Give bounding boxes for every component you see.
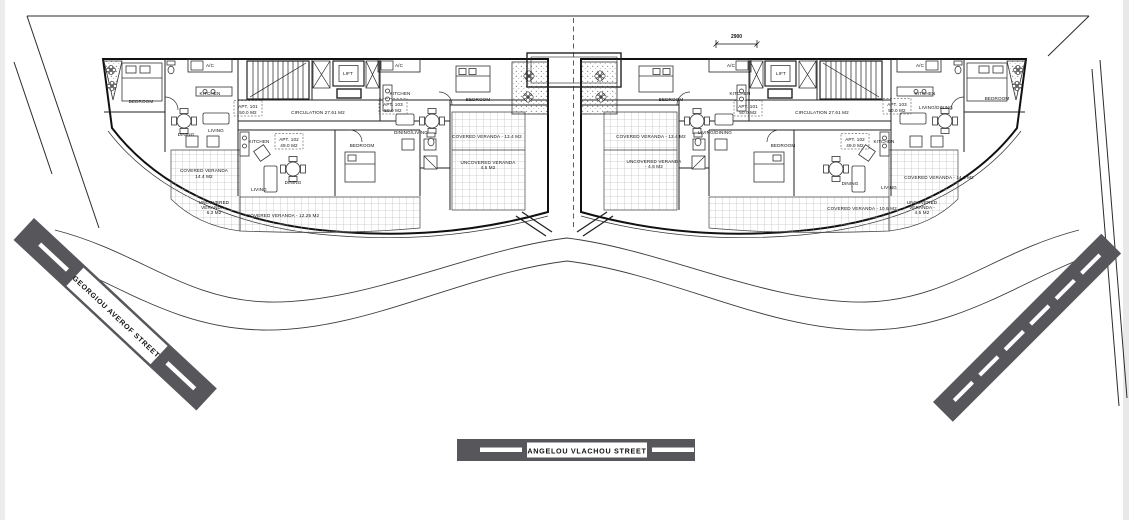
room-label: A/C [395, 63, 404, 68]
street-left: GEORGIOU AVEROF STREET [14, 218, 217, 410]
room-label: LIVING [208, 128, 224, 133]
room-label: KITCHEN [199, 91, 220, 96]
site-plan-canvas: 2900 BEDROOM A/C KITCHEN DINING LIVING A… [0, 0, 1129, 520]
dimension-label: 2900 [731, 34, 742, 40]
apartment-label: APT. 101 [738, 104, 758, 109]
apartment-label: APT. 102 [845, 137, 865, 142]
left-building-wing [103, 59, 552, 238]
room-label: A/C [206, 63, 215, 68]
apartment-area-label: 50.0 M2 [739, 110, 757, 115]
apartment-area-label: 49.0 M2 [280, 143, 298, 148]
lift-label: LIFT [343, 71, 353, 76]
veranda-area-label: - 4.6 M2 [645, 164, 663, 169]
apartment-label: APT. 101 [238, 104, 258, 109]
veranda-label: COVERED VERANDA - 10.6 M2 [827, 206, 897, 211]
dimension-annotation: 2900 [714, 34, 760, 48]
veranda-label: COVERED VERANDA - 13.4 M2 [452, 134, 522, 139]
lane-dash [480, 448, 522, 453]
room-label: KITCHEN [729, 91, 750, 96]
room-label: DINING [178, 132, 195, 137]
apartment-area-label: 50.0 M2 [888, 108, 906, 113]
lane-dash [652, 448, 694, 453]
street-right [933, 234, 1121, 422]
room-label: BEDROOM [659, 97, 684, 102]
lift-label: LIFT [776, 71, 786, 76]
room-label: BEDROOM [129, 99, 154, 104]
room-label: A/C [916, 63, 925, 68]
apartment-area-label: 50.0 M2 [384, 108, 402, 113]
apartment-label: APT. 103 [383, 102, 403, 107]
street-label-bottom: ANGELOU VLACHOU STREET [527, 447, 646, 456]
street-label-left: GEORGIOU AVEROF STREET [71, 274, 162, 360]
room-label: KITCHEN [389, 91, 410, 96]
room-label: LIVING [251, 187, 267, 192]
room-label: LIVING/DINING [698, 130, 732, 135]
room-label: DINING [842, 181, 859, 186]
room-label: DINING/LIVING [394, 130, 428, 135]
room-label: LIVING/DINING [919, 105, 953, 110]
apartment-label: APT. 103 [887, 102, 907, 107]
veranda-area-label: 4.5 M2 [481, 165, 496, 170]
veranda-area-label: 4.5 M2 [915, 210, 930, 215]
screen-edge-strip-left [0, 0, 5, 520]
veranda-area-label: 14.4 M2 [195, 174, 213, 179]
room-label: A/C [727, 63, 736, 68]
room-label: KITCHEN [248, 139, 269, 144]
screen-edge-strip-right [1123, 0, 1129, 520]
street-bottom: ANGELOU VLACHOU STREET [457, 439, 695, 461]
veranda-label: COVERED VERANDA - 13.4 M2 [616, 134, 686, 139]
room-label: BEDROOM [350, 143, 375, 148]
circulation-label: CIRCULATION 27.61 M2 [795, 110, 849, 115]
room-label: BEDROOM [466, 97, 491, 102]
right-building-wing [577, 59, 1026, 238]
veranda-label: COVERED VERANDA - 12.25 M2 [247, 213, 320, 218]
veranda-label: COVERED VERANDA - 14.0 M2 [904, 175, 974, 180]
apartment-label: APT. 102 [279, 137, 299, 142]
room-label: BEDROOM [985, 96, 1010, 101]
veranda-label: COVERED VERANDA [180, 168, 229, 173]
room-label: DINING [285, 180, 302, 185]
apartment-area-label: 50.0 M2 [239, 110, 257, 115]
room-label: KITCHEN [873, 139, 894, 144]
room-label: BEDROOM [771, 143, 796, 148]
veranda-area-label: 6.3 M2 [207, 210, 222, 215]
room-label: LIVING [881, 185, 897, 190]
apartment-area-label: 49.0 M2 [846, 143, 864, 148]
room-label: KITCHEN [914, 91, 935, 96]
road-edge-curves [30, 230, 1104, 330]
circulation-label: CIRCULATION 27.61 M2 [291, 110, 345, 115]
